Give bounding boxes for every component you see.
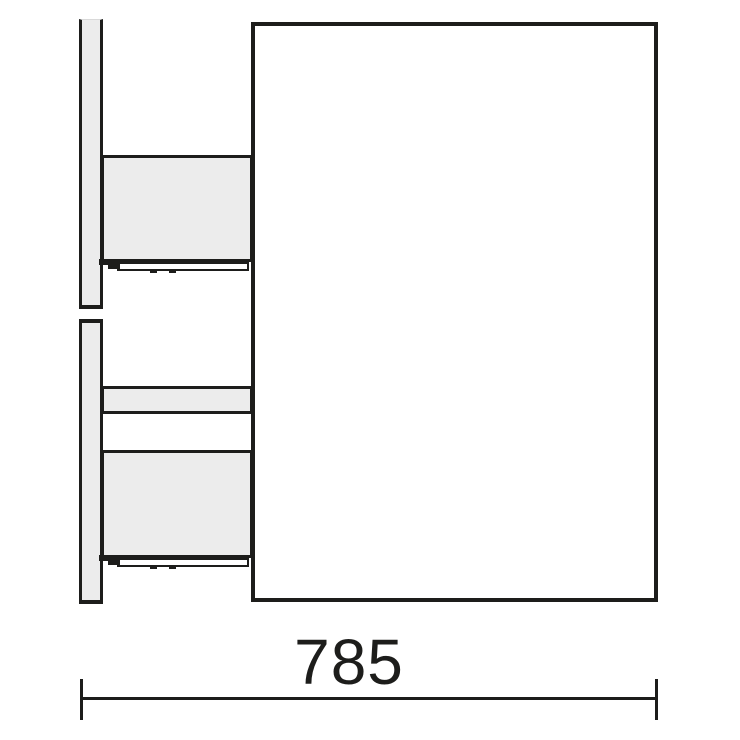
- furniture-technical-drawing: 785: [0, 0, 740, 740]
- wall-panel-upper: [79, 19, 103, 309]
- dimension-label: 785: [294, 630, 404, 694]
- drawer-slide-bottom-tab: [169, 566, 176, 569]
- drawer-slide-bottom-tab: [150, 566, 157, 569]
- drawer-box-top: [101, 155, 253, 262]
- cabinet-body: [251, 22, 658, 602]
- drawer-slide-top-tab: [169, 270, 176, 273]
- drawer-slide-top: [117, 262, 249, 271]
- drawer-box-bottom: [101, 450, 253, 558]
- drawer-slide-bottom: [117, 558, 249, 567]
- drawer-slide-top-bracket-step: [108, 264, 120, 269]
- drawer-slide-top-tab: [150, 270, 157, 273]
- drawer-slide-bottom-bracket-step: [108, 560, 120, 565]
- cross-rail: [101, 386, 253, 414]
- wall-panel-lower: [79, 319, 103, 604]
- dimension-tick-right: [655, 679, 658, 720]
- dimension-tick-left: [80, 679, 83, 720]
